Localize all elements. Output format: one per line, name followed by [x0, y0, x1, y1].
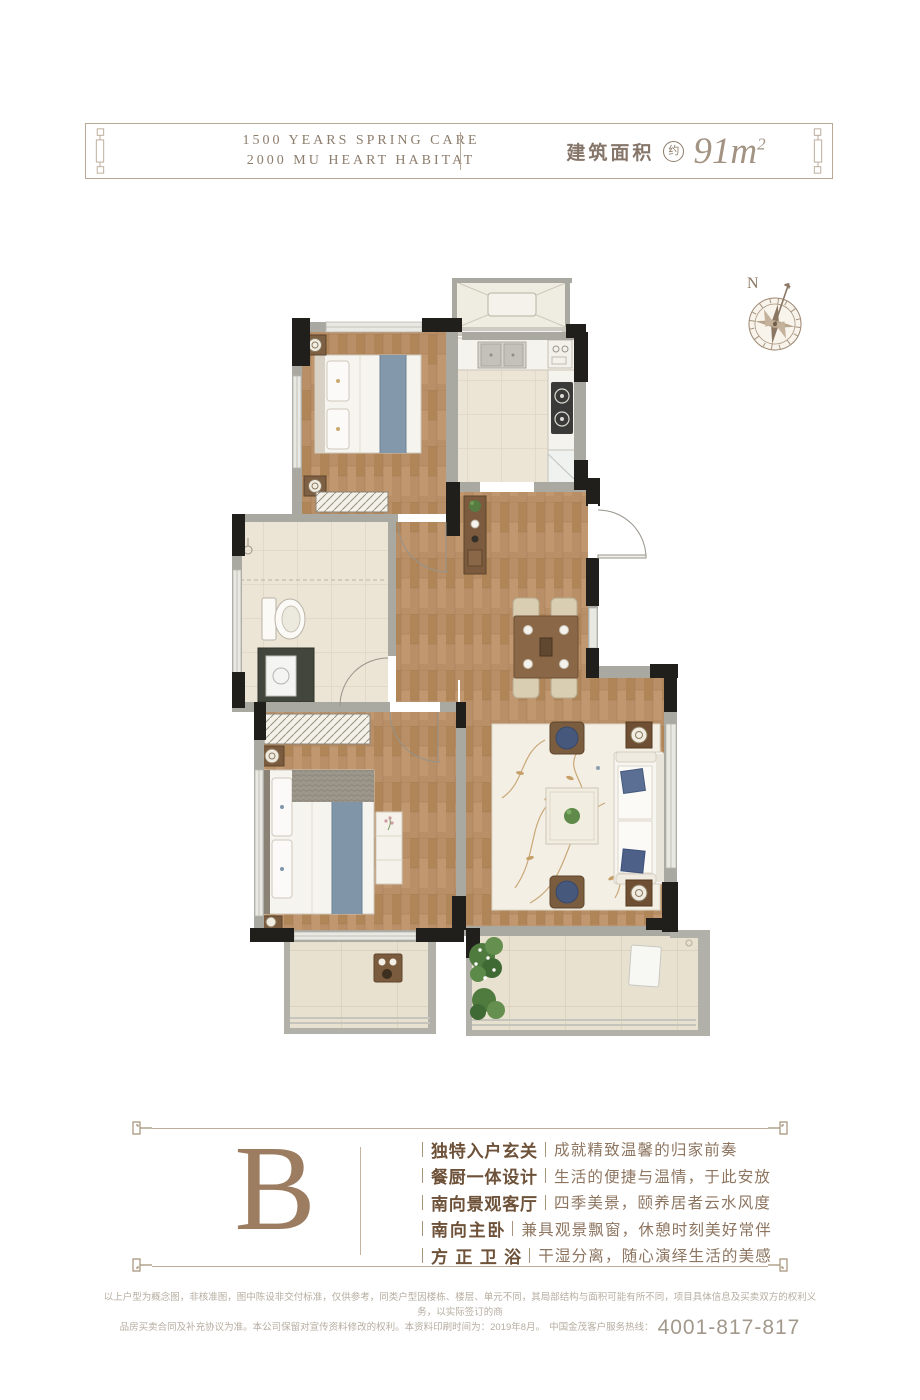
- tick-bar: [422, 1195, 423, 1210]
- feature-divider: [360, 1147, 361, 1255]
- feature-row: 独特入户玄关 成就精致温馨的归家前奏: [422, 1136, 772, 1163]
- feature-list: 独特入户玄关 成就精致温馨的归家前奏 餐厨一体设计 生活的便捷与温情，于此安放 …: [422, 1136, 772, 1269]
- feature-desc: 四季美景，颐养居者云水风度: [554, 1191, 771, 1213]
- feature-desc: 兼具观景飘窗，休憩时刻美好常伴: [521, 1218, 772, 1240]
- feature-row: 餐厨一体设计 生活的便捷与温情，于此安放: [422, 1163, 772, 1190]
- floor-plan: [230, 278, 710, 1050]
- feature-label: 南向景观客厅: [431, 1190, 537, 1215]
- side-table: [626, 722, 652, 748]
- coffee-table: [546, 788, 598, 844]
- disclaimer-line2: 品房买卖合同及补充协议为准。本公司保留对宣传资料修改的权利。本资料印刷时间为：2…: [120, 1320, 545, 1335]
- feature-section: B 独特入户玄关 成就精致温馨的归家前奏 餐厨一体设计 生活的便捷与温情，于此安…: [130, 1119, 790, 1269]
- header-divider: [460, 132, 461, 170]
- hotline-label: 中国金茂客户服务热线：: [549, 1320, 654, 1335]
- feature-label: 餐厨一体设计: [431, 1163, 537, 1188]
- wardrobe: [264, 714, 370, 744]
- tick-bar: [512, 1221, 513, 1236]
- feature-label: 南向主卧: [431, 1216, 504, 1241]
- feature-row: 南向主卧 兼具观景飘窗，休憩时刻美好常伴: [422, 1216, 772, 1243]
- tick-bar: [422, 1248, 423, 1263]
- hallway-floor: [394, 520, 458, 706]
- entry-console: [464, 496, 486, 574]
- tick-bar: [422, 1168, 423, 1183]
- slogan-line2: 2000 MU HEART HABITAT: [196, 151, 526, 171]
- compass-north-label: N: [747, 275, 759, 292]
- fridge: [548, 450, 575, 484]
- equipment-platform: [456, 282, 568, 328]
- feature-label: 独特入户玄关: [431, 1137, 537, 1162]
- tick-bar: [545, 1195, 546, 1210]
- tick-bar: [422, 1221, 423, 1236]
- feature-desc: 成就精致温馨的归家前奏: [554, 1138, 738, 1160]
- feature-label: 方正卫浴: [431, 1243, 521, 1268]
- stove: [551, 382, 573, 434]
- kitchen-sink: [478, 342, 526, 368]
- wardrobe: [316, 492, 388, 512]
- living-room: [492, 722, 664, 910]
- area-value: 91m2: [693, 130, 765, 173]
- armchair: [550, 876, 584, 908]
- master-bed: [260, 770, 374, 914]
- unit-type-letter: B: [210, 1127, 340, 1251]
- header-banner: 1500 YEARS SPRING CARE 2000 MU HEART HAB…: [85, 123, 833, 179]
- page: 1500 YEARS SPRING CARE 2000 MU HEART HAB…: [0, 0, 920, 1400]
- building-area: 建筑面积 约 91m2: [506, 124, 826, 178]
- tick-bar: [545, 1142, 546, 1157]
- storage-unit: [629, 945, 662, 987]
- hotline-number: 4001-817-817: [658, 1320, 801, 1335]
- toilet: [262, 598, 305, 640]
- header-ornament-left-icon: [92, 127, 108, 175]
- tick-bar: [545, 1168, 546, 1183]
- corner-bracket-icon: [130, 1119, 152, 1141]
- slogan-line1: 1500 YEARS SPRING CARE: [196, 131, 526, 151]
- feature-desc: 干湿分离，随心演绎生活的美感: [538, 1244, 772, 1266]
- laundry-vanity: [258, 648, 314, 702]
- corner-bracket-icon: [130, 1252, 152, 1274]
- tea-tray: [374, 954, 402, 982]
- tick-bar: [422, 1142, 423, 1157]
- tick-bar: [529, 1248, 530, 1263]
- approx-badge: 约: [663, 141, 684, 162]
- armchair: [550, 722, 584, 754]
- balcony-right-floor: [470, 934, 700, 1032]
- feature-desc: 生活的便捷与温情，于此安放: [554, 1165, 771, 1187]
- area-label: 建筑面积: [566, 138, 654, 165]
- dresser: [376, 812, 402, 884]
- footer: 以上户型为概念图，非核准图，图中陈设非交付标准，仅供参考，同类户型因楼栋、楼层、…: [100, 1290, 820, 1335]
- feature-row: 方正卫浴 干湿分离，随心演绎生活的美感: [422, 1242, 772, 1269]
- balcony-left-floor: [288, 940, 434, 1030]
- balcony-left: [374, 954, 402, 982]
- compass: N: [733, 270, 807, 356]
- project-slogan: 1500 YEARS SPRING CARE 2000 MU HEART HAB…: [196, 131, 526, 171]
- sofa: [614, 752, 664, 884]
- feature-row: 南向景观客厅 四季美景，颐养居者云水风度: [422, 1189, 772, 1216]
- side-table: [626, 880, 652, 906]
- disclaimer-line2-row: 品房买卖合同及补充协议为准。本公司保留对宣传资料修改的权利。本资料印刷时间为：2…: [100, 1320, 820, 1335]
